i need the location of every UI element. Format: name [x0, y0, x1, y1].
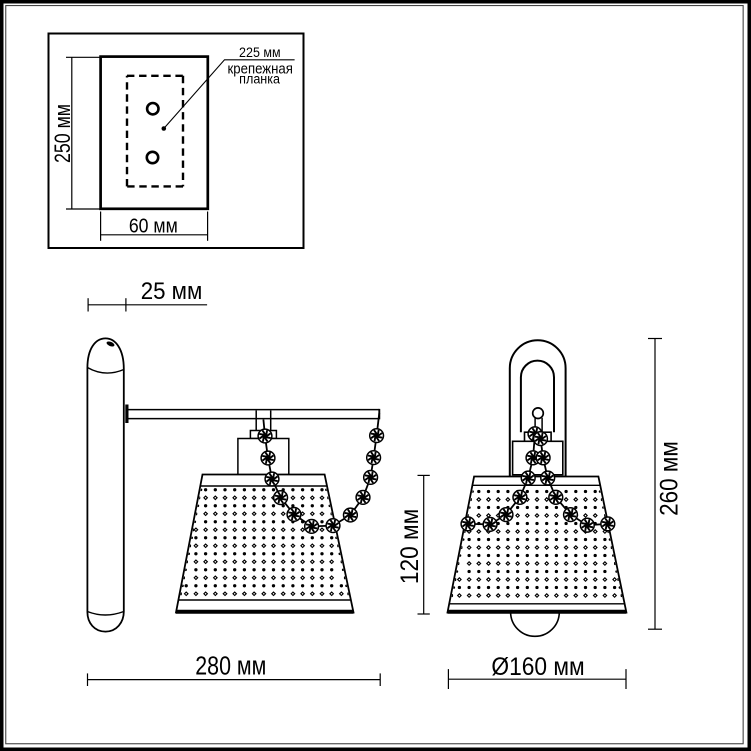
- svg-text:225 мм: 225 мм: [239, 44, 281, 60]
- svg-text:120 мм: 120 мм: [396, 509, 424, 584]
- svg-text:60 мм: 60 мм: [129, 215, 178, 237]
- svg-text:260 мм: 260 мм: [657, 441, 684, 516]
- svg-text:280 мм: 280 мм: [195, 653, 266, 681]
- svg-text:Ø160 мм: Ø160 мм: [491, 653, 584, 681]
- svg-text:планка: планка: [239, 71, 280, 87]
- svg-text:250 мм: 250 мм: [51, 104, 75, 163]
- svg-text:25 мм: 25 мм: [141, 277, 203, 304]
